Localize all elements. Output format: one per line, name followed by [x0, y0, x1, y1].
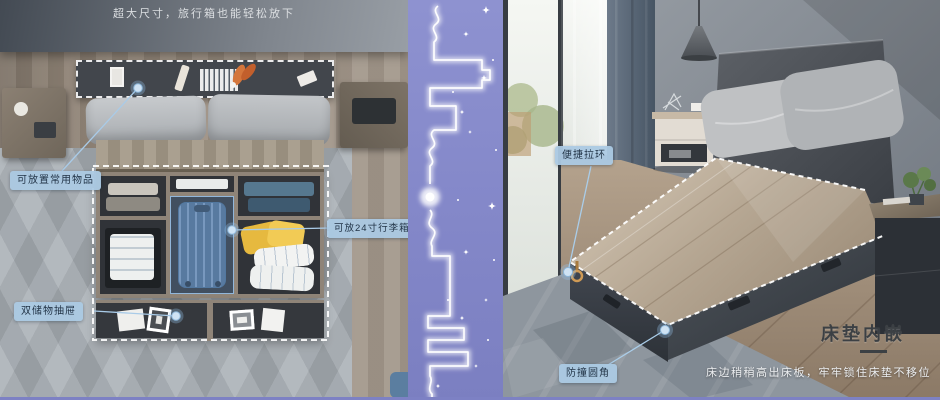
skyline-art: [408, 0, 503, 400]
hotspot-dot: [131, 81, 146, 96]
label-corner-guard: 防撞圆角: [559, 364, 617, 383]
hotspot-dot: [657, 322, 673, 338]
skyline-path: [420, 6, 490, 400]
panel-perspective-scene: 便捷拉环 防撞圆角 床垫内嵌 床边稍稍高出床板，牢牢锁住床垫不移位: [503, 0, 940, 400]
hotspot-dot: [560, 264, 576, 280]
feature-description: 床边稍稍高出床板，牢牢锁住床垫不移位: [706, 364, 931, 380]
label-shelf-items: 可放置常用物品: [10, 171, 101, 190]
hotspot-dot: [169, 309, 184, 324]
product-detail-banner: 超大尺寸，旅行箱也能轻松放下 可放置常用物品 双储物抽屉 可放24寸行李箱: [0, 0, 940, 400]
glow-blob-core: [426, 193, 435, 202]
sheer-fold: [599, 0, 602, 158]
hotspot-dot: [225, 223, 240, 238]
panel-top-view-scene: 超大尺寸，旅行箱也能轻松放下 可放置常用物品 双储物抽屉 可放24寸行李箱: [0, 0, 408, 400]
label-storage-drawers: 双储物抽屉: [14, 302, 83, 321]
bed-dashed-outline: [93, 166, 328, 340]
left-annotation-overlay: [0, 0, 408, 400]
label-pull-ring: 便捷拉环: [555, 146, 613, 165]
leader-line-suitcase: [232, 228, 330, 230]
label-suitcase: 可放24寸行李箱: [327, 219, 408, 238]
sheer-fold: [573, 0, 576, 158]
top-caption: 超大尺寸，旅行箱也能轻松放下: [0, 5, 408, 21]
leader-line-shelf: [62, 88, 138, 171]
feature-title-dash: [860, 350, 887, 353]
leader-line-drawers: [94, 311, 176, 316]
divider-strip: [408, 0, 503, 400]
feature-title: 床垫内嵌: [821, 320, 905, 346]
